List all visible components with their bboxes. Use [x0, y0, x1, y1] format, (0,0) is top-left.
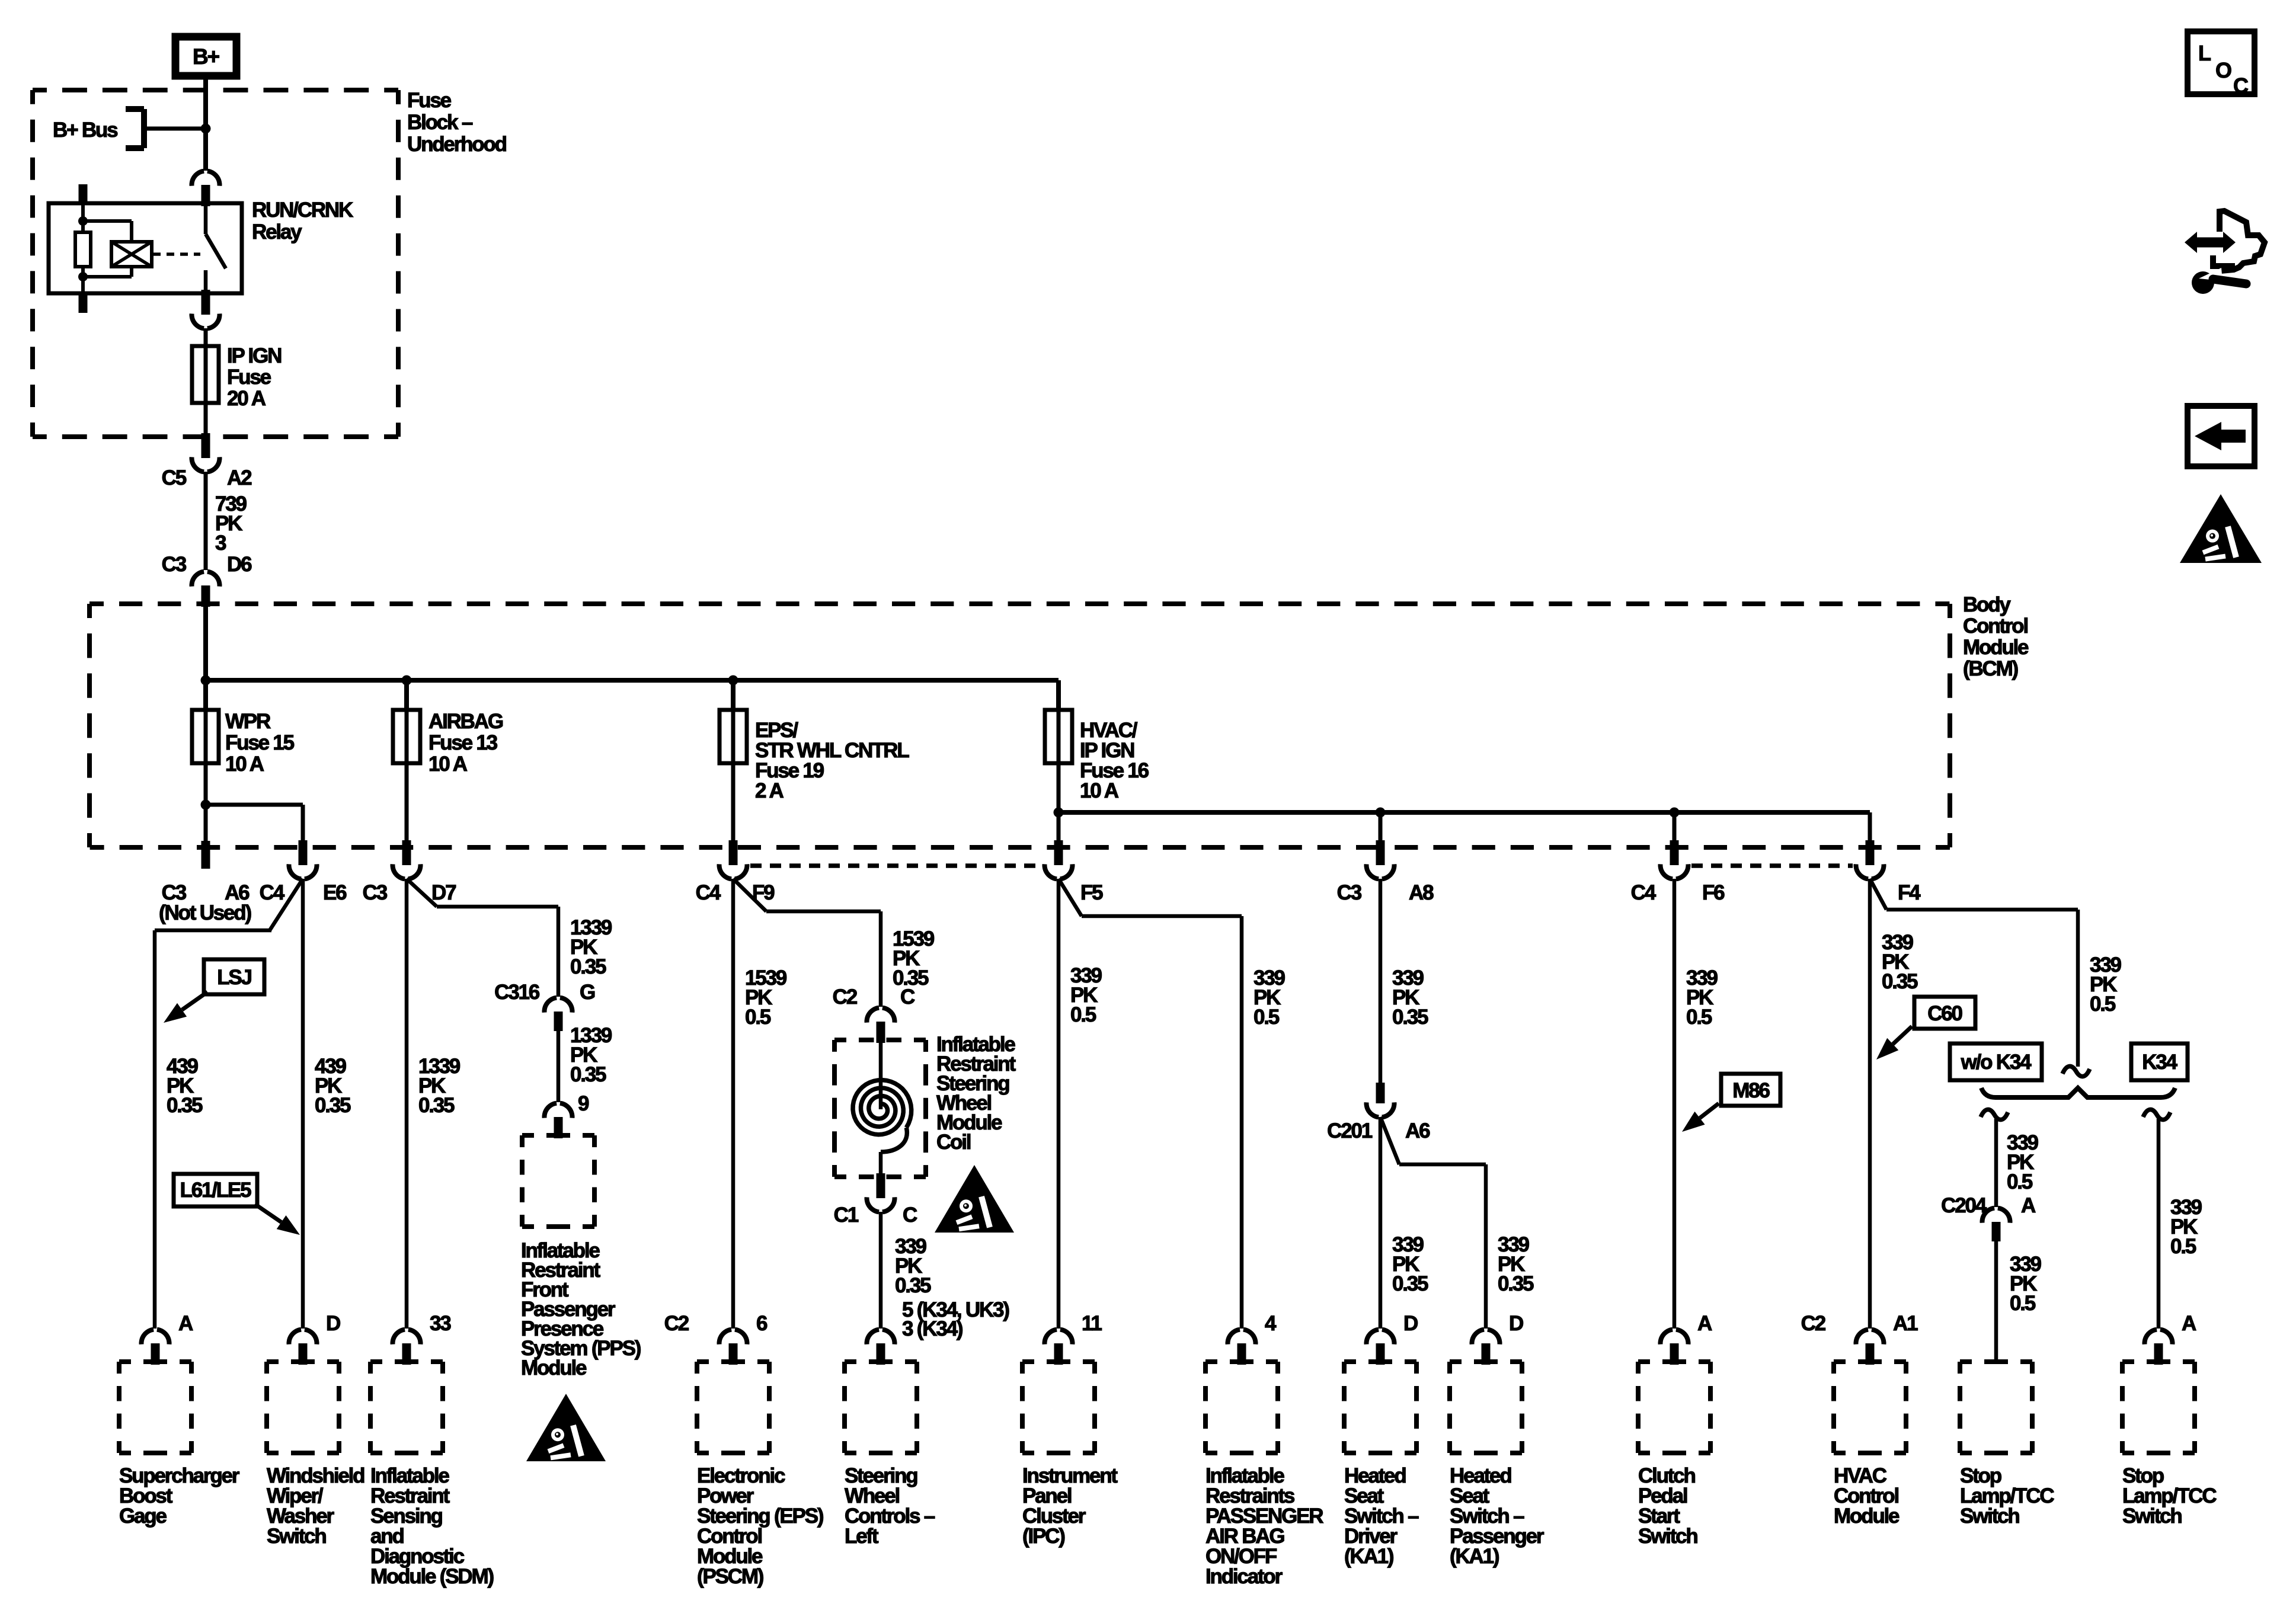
svg-text:Block –: Block –: [407, 111, 473, 134]
svg-text:3: 3: [215, 532, 226, 555]
svg-text:C: C: [2233, 73, 2249, 98]
svg-text:10 A: 10 A: [225, 753, 264, 776]
svg-text:(IPC): (IPC): [1022, 1525, 1064, 1548]
svg-text:C316: C316: [494, 981, 540, 1004]
svg-text:Coil: Coil: [936, 1131, 971, 1154]
svg-text:F5: F5: [1080, 881, 1103, 904]
svg-text:A: A: [2021, 1194, 2036, 1217]
svg-text:Fuse: Fuse: [227, 366, 271, 389]
svg-text:M86: M86: [1732, 1079, 1770, 1102]
svg-text:D: D: [1509, 1312, 1523, 1335]
svg-text:20 A: 20 A: [227, 387, 266, 410]
svg-text:A: A: [178, 1312, 193, 1335]
svg-text:B+ Bus: B+ Bus: [53, 119, 118, 142]
svg-text:w/o K34: w/o K34: [1961, 1051, 2032, 1074]
svg-text:D6: D6: [227, 553, 252, 576]
svg-text:C204: C204: [1941, 1194, 1987, 1217]
svg-text:0.35: 0.35: [167, 1094, 203, 1117]
svg-text:(PSCM): (PSCM): [697, 1565, 763, 1588]
svg-text:6: 6: [756, 1312, 768, 1335]
svg-text:Left: Left: [845, 1525, 879, 1548]
svg-text:A8: A8: [1409, 881, 1434, 904]
svg-text:A: A: [1697, 1312, 1712, 1335]
svg-text:0.35: 0.35: [315, 1094, 351, 1117]
svg-text:C2: C2: [1801, 1312, 1826, 1335]
svg-text:Module (SDM): Module (SDM): [370, 1565, 493, 1588]
svg-text:3 (K34): 3 (K34): [902, 1317, 962, 1340]
svg-text:(Not Used): (Not Used): [159, 901, 251, 924]
svg-text:C201: C201: [1327, 1119, 1373, 1142]
svg-text:D: D: [326, 1312, 340, 1335]
svg-text:Body: Body: [1963, 593, 2011, 616]
svg-text:RUN/CRNK: RUN/CRNK: [252, 199, 353, 222]
svg-text:C3: C3: [162, 553, 187, 576]
svg-text:A2: A2: [227, 466, 252, 489]
svg-text:O: O: [2215, 58, 2231, 82]
svg-text:D: D: [1403, 1312, 1418, 1335]
svg-text:0.35: 0.35: [570, 1063, 606, 1086]
svg-text:0.35: 0.35: [570, 955, 606, 978]
svg-text:(KA1): (KA1): [1344, 1545, 1393, 1568]
svg-text:(BCM): (BCM): [1963, 657, 2018, 680]
svg-text:0.35: 0.35: [1392, 1006, 1428, 1029]
svg-text:F6: F6: [1702, 881, 1725, 904]
svg-text:L61/LE5: L61/LE5: [180, 1179, 252, 1202]
svg-text:AIRBAG: AIRBAG: [428, 710, 503, 733]
svg-text:9: 9: [578, 1092, 589, 1115]
svg-text:C4: C4: [1631, 881, 1657, 904]
svg-text:K34: K34: [2142, 1051, 2177, 1074]
svg-text:A6: A6: [1405, 1119, 1430, 1142]
svg-text:Relay: Relay: [252, 220, 302, 244]
svg-text:C3: C3: [1337, 881, 1362, 904]
svg-text:A6: A6: [225, 881, 250, 904]
svg-text:Indicator: Indicator: [1205, 1565, 1283, 1588]
svg-text:L: L: [2198, 41, 2211, 65]
svg-text:C1: C1: [834, 1204, 859, 1227]
svg-text:C4: C4: [696, 881, 721, 904]
svg-text:Switch: Switch: [2122, 1505, 2182, 1528]
svg-text:Fuse 15: Fuse 15: [225, 731, 295, 754]
svg-text:Fuse 13: Fuse 13: [428, 731, 498, 754]
svg-text:2 A: 2 A: [755, 779, 784, 802]
svg-text:C60: C60: [1927, 1002, 1962, 1025]
svg-text:Underhood: Underhood: [407, 133, 507, 156]
svg-text:0.5: 0.5: [1070, 1003, 1096, 1026]
svg-text:0.5: 0.5: [2007, 1170, 2033, 1193]
svg-text:33: 33: [430, 1312, 451, 1335]
svg-text:E6: E6: [323, 881, 347, 904]
svg-text:C4: C4: [260, 881, 285, 904]
svg-text:A: A: [2182, 1312, 2196, 1335]
svg-text:0.35: 0.35: [418, 1094, 455, 1117]
svg-text:11: 11: [1082, 1312, 1102, 1335]
svg-text:B+: B+: [193, 44, 220, 69]
svg-text:0.5: 0.5: [1686, 1006, 1712, 1029]
svg-text:Switch: Switch: [1638, 1525, 1697, 1548]
svg-text:0.35: 0.35: [1392, 1272, 1428, 1295]
svg-text:C: C: [903, 1204, 917, 1227]
svg-text:10 A: 10 A: [428, 753, 468, 776]
svg-text:Module: Module: [521, 1356, 587, 1379]
svg-text:0.35: 0.35: [895, 1274, 931, 1297]
svg-text:Module: Module: [1963, 636, 2029, 659]
svg-text:Fuse: Fuse: [407, 89, 452, 112]
svg-text:Gage: Gage: [119, 1505, 167, 1528]
svg-text:D7: D7: [431, 881, 456, 904]
svg-text:0.5: 0.5: [2170, 1235, 2196, 1258]
svg-text:G: G: [580, 981, 595, 1004]
svg-text:C: C: [900, 985, 915, 1009]
svg-text:C5: C5: [162, 466, 187, 489]
svg-text:F4: F4: [1898, 881, 1921, 904]
svg-text:LSJ: LSJ: [217, 966, 251, 989]
svg-text:WPR: WPR: [225, 710, 271, 733]
svg-text:A1: A1: [1893, 1312, 1918, 1335]
svg-text:C2: C2: [833, 985, 858, 1009]
svg-text:Control: Control: [1963, 614, 2028, 638]
svg-text:10 A: 10 A: [1080, 779, 1119, 802]
svg-text:0.5: 0.5: [1253, 1006, 1280, 1029]
svg-text:IP IGN: IP IGN: [227, 344, 281, 367]
svg-text:Module: Module: [1834, 1505, 1900, 1528]
svg-text:4: 4: [1265, 1312, 1277, 1335]
svg-text:(KA1): (KA1): [1450, 1545, 1499, 1568]
svg-text:Switch: Switch: [267, 1525, 326, 1548]
svg-text:C2: C2: [664, 1312, 689, 1335]
svg-text:0.5: 0.5: [2090, 993, 2116, 1016]
svg-text:0.35: 0.35: [1498, 1272, 1534, 1295]
svg-text:C3: C3: [363, 881, 388, 904]
svg-text:0.5: 0.5: [2010, 1292, 2036, 1315]
svg-text:0.5: 0.5: [745, 1006, 771, 1029]
svg-text:Switch: Switch: [1960, 1505, 2019, 1528]
svg-text:0.35: 0.35: [1882, 970, 1918, 993]
